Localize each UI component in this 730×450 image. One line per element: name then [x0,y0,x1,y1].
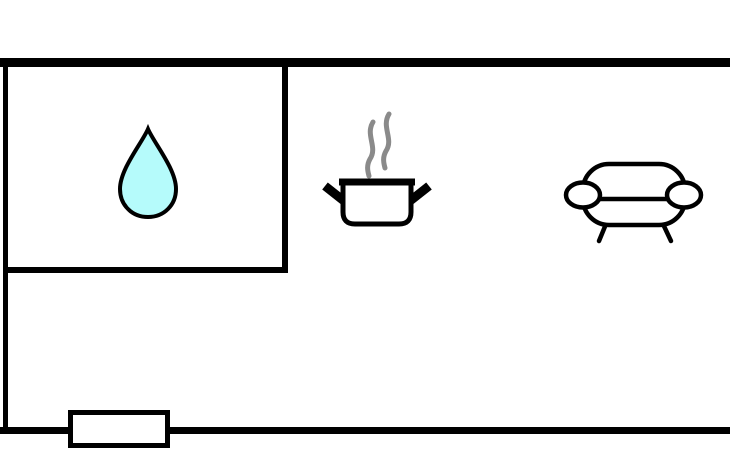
floor-plan-drawing [0,0,730,450]
door-opening [71,413,168,446]
partition-wall-right [282,58,288,273]
outer-wall-top [0,58,730,67]
outer-wall-left [3,58,8,434]
floor-plan [0,0,730,450]
partition-wall-bottom [3,267,288,273]
sofa-armrest-right [667,183,701,208]
sofa-armrest-left [566,183,600,208]
pot-body [343,182,411,224]
